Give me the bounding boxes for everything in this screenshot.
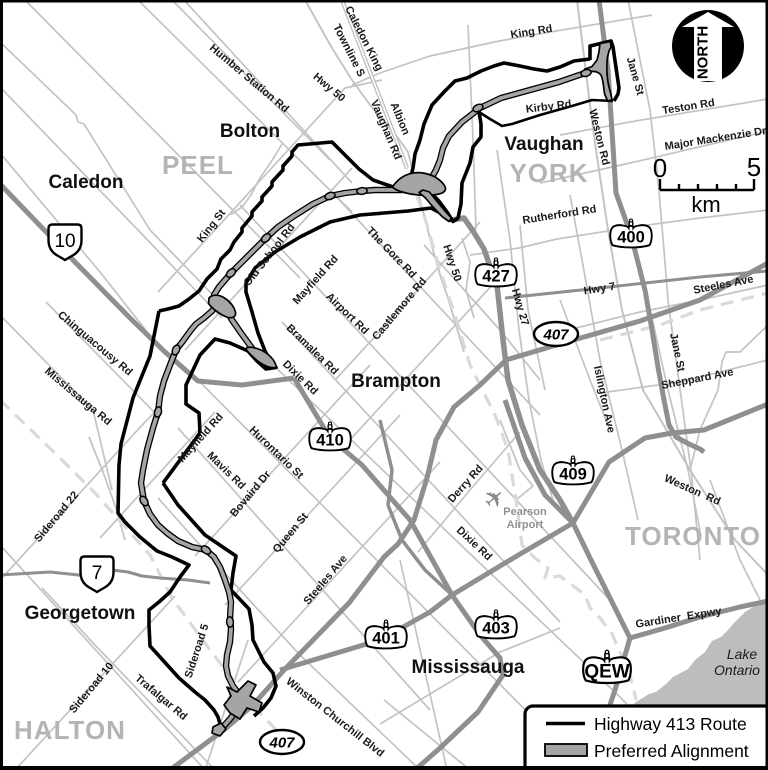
- svg-text:403: 403: [482, 620, 510, 638]
- svg-text:Lake: Lake: [727, 646, 758, 662]
- svg-text:5: 5: [747, 152, 761, 182]
- svg-text:HALTON: HALTON: [14, 715, 126, 745]
- svg-text:Brampton: Brampton: [351, 371, 441, 392]
- svg-text:PEEL: PEEL: [162, 150, 234, 180]
- svg-text:0: 0: [653, 153, 667, 183]
- svg-text:400: 400: [617, 229, 645, 247]
- svg-text:10: 10: [54, 231, 75, 252]
- svg-text:Pearson: Pearson: [503, 506, 547, 518]
- svg-text:NORTH: NORTH: [695, 26, 712, 79]
- svg-text:Preferred Alignment: Preferred Alignment: [594, 741, 749, 761]
- svg-text:Georgetown: Georgetown: [25, 603, 136, 624]
- svg-text:QEW: QEW: [584, 661, 629, 682]
- svg-text:km: km: [691, 192, 720, 217]
- svg-text:Bolton: Bolton: [220, 121, 280, 142]
- svg-text:TORONTO: TORONTO: [625, 521, 761, 551]
- svg-text:410: 410: [316, 432, 344, 450]
- svg-text:Vaughan: Vaughan: [504, 134, 583, 155]
- svg-text:Ontario: Ontario: [714, 662, 760, 678]
- svg-text:Mississauga: Mississauga: [412, 657, 525, 678]
- svg-text:Caledon: Caledon: [49, 172, 124, 193]
- svg-text:407: 407: [268, 735, 295, 752]
- svg-text:401: 401: [372, 630, 400, 648]
- svg-text:Airport: Airport: [507, 519, 544, 531]
- svg-text:YORK: YORK: [509, 158, 588, 188]
- svg-text:407: 407: [542, 327, 569, 344]
- svg-text:7: 7: [92, 563, 103, 584]
- svg-text:Highway 413 Route: Highway 413 Route: [594, 714, 747, 734]
- svg-text:427: 427: [482, 268, 510, 286]
- svg-text:409: 409: [559, 466, 587, 484]
